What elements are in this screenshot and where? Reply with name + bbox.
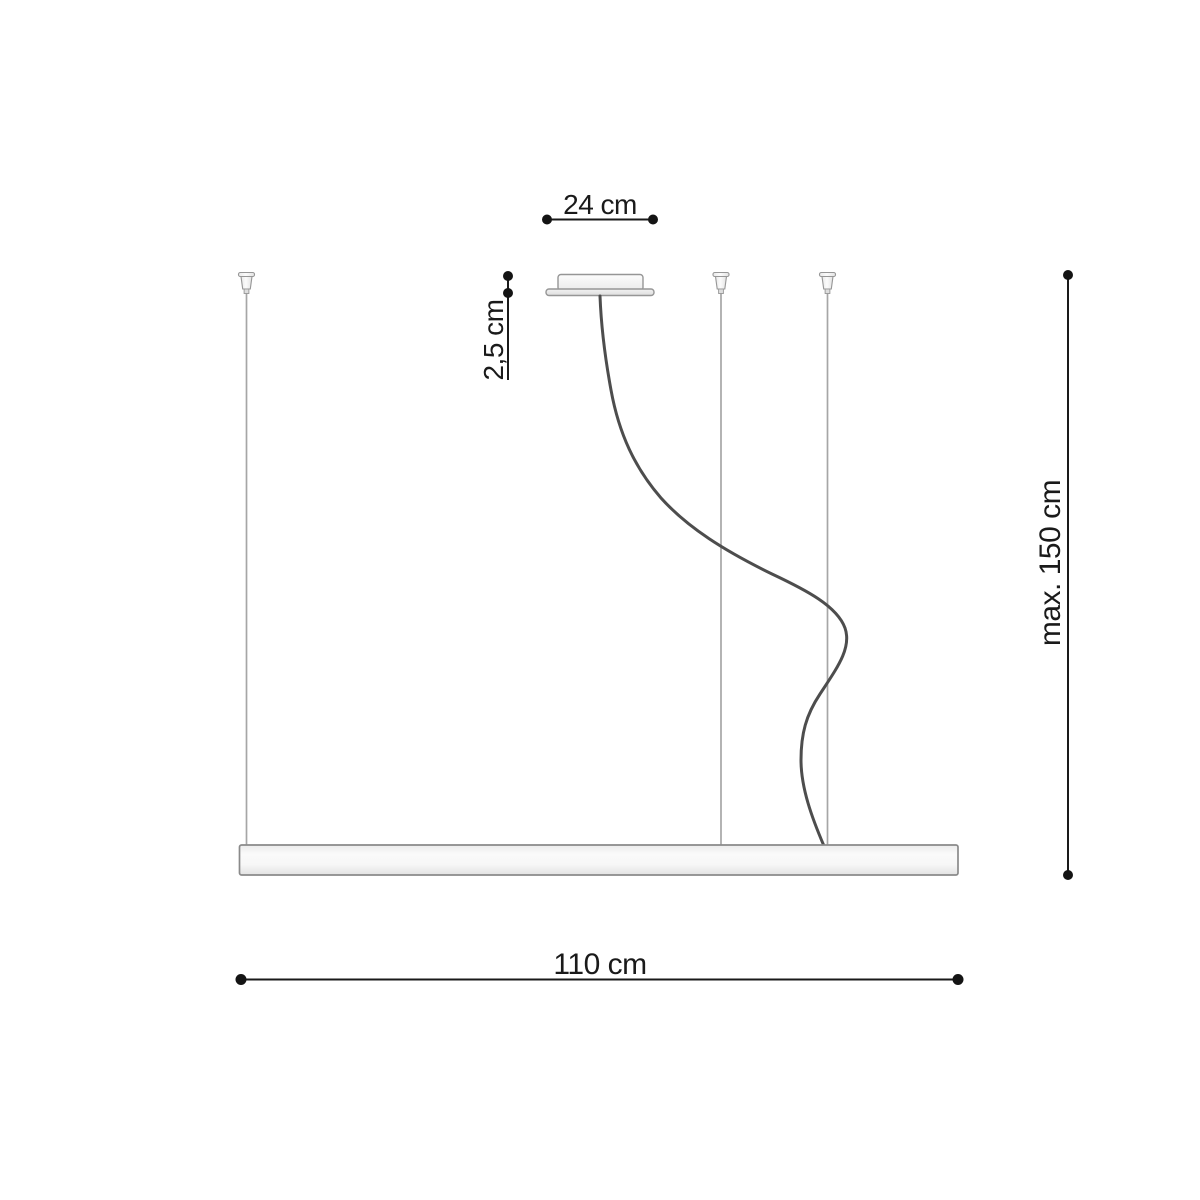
wire-grip-collar [244,289,249,294]
dim-fixture-length-label: 110 cm [553,948,646,981]
dim-fixture-length: 110 cm [236,948,964,985]
dim-canopy-height-dot-top [503,271,513,281]
dim-max-height-dot-bottom [1063,870,1073,880]
suspension-wire-left [239,273,255,847]
suspension-wire-right [820,273,836,847]
dim-canopy-height-dot-bottom [503,288,513,298]
dim-canopy-width-label: 24 cm [563,189,637,220]
canopy-body [558,275,643,291]
wire-grip-collar [825,289,830,294]
wire-grip-rim [820,273,836,277]
dim-fixture-length-dot-left [236,974,247,985]
ceiling-canopy [546,275,654,296]
dim-max-height: max. 150 cm [1034,270,1073,880]
lamp-bar [240,845,959,875]
dimension-diagram-canvas: 24 cm 2,5 cm [0,0,1200,1200]
suspension-wire-middle [713,273,729,847]
dim-canopy-width-dot-right [648,215,658,225]
dim-canopy-width: 24 cm [542,189,658,225]
wire-grip-body [716,277,727,290]
dim-canopy-height-label: 2,5 cm [478,299,509,380]
wire-grip-body [822,277,833,290]
dim-canopy-width-dot-left [542,215,552,225]
power-cable [600,296,847,846]
wire-grip-rim [239,273,255,277]
dim-max-height-label: max. 150 cm [1034,480,1067,646]
wire-grip-rim [713,273,729,277]
dim-max-height-dot-top [1063,270,1073,280]
dim-canopy-height: 2,5 cm [478,271,513,381]
pendant-lamp-dimension-drawing: 24 cm 2,5 cm [0,0,1200,1200]
wire-grip-body [241,277,252,290]
dim-fixture-length-dot-right [953,974,964,985]
wire-grip-collar [719,289,724,294]
